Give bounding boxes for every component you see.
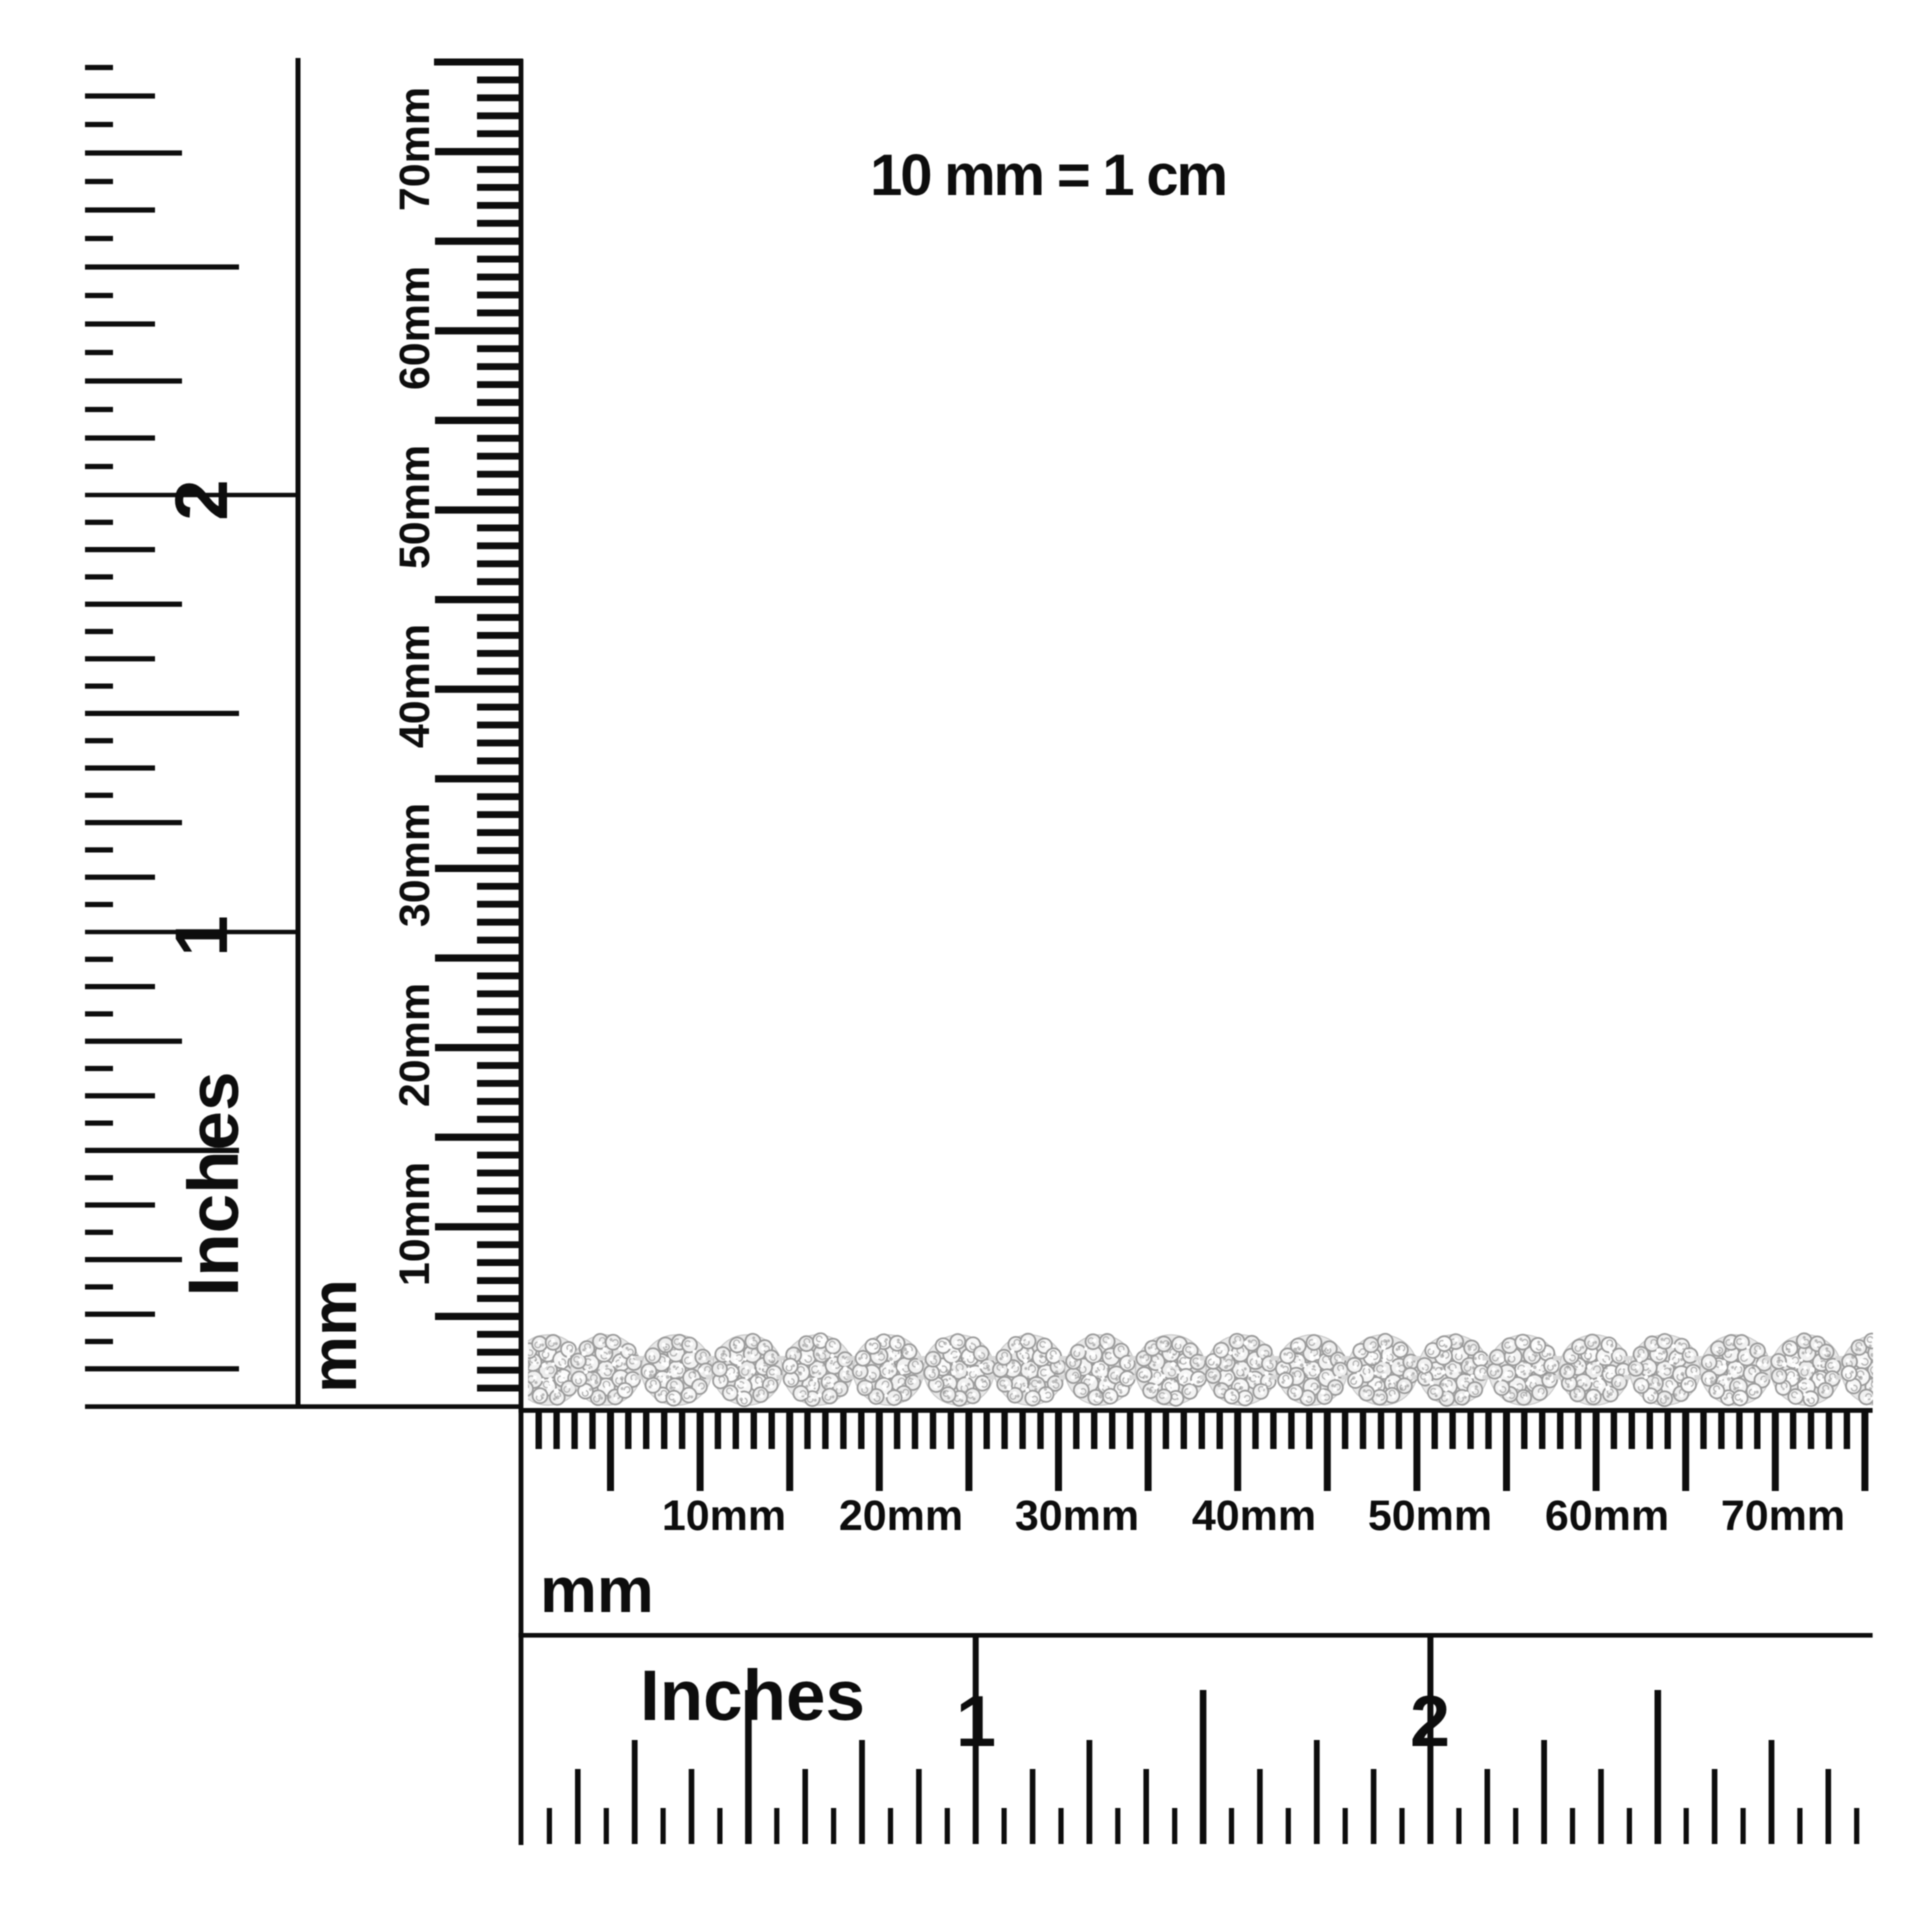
svg-text:mm: mm	[540, 1554, 654, 1626]
svg-text:70mm: 70mm	[391, 87, 439, 211]
svg-text:10mm: 10mm	[391, 1162, 439, 1286]
svg-text:10mm: 10mm	[662, 1492, 786, 1540]
svg-text:70mm: 70mm	[1721, 1492, 1845, 1540]
svg-text:60mm: 60mm	[1545, 1492, 1669, 1540]
svg-text:40mm: 40mm	[391, 624, 439, 748]
svg-text:2: 2	[160, 479, 243, 520]
svg-text:10 mm = 1 cm: 10 mm = 1 cm	[870, 143, 1226, 208]
svg-text:mm: mm	[298, 1279, 370, 1393]
svg-text:Inches: Inches	[640, 1657, 865, 1736]
svg-text:1: 1	[160, 915, 243, 956]
svg-text:20mm: 20mm	[391, 983, 439, 1107]
svg-text:30mm: 30mm	[1015, 1492, 1139, 1540]
svg-text:2: 2	[1410, 1682, 1450, 1762]
svg-text:Inches: Inches	[175, 1072, 254, 1297]
svg-text:1: 1	[956, 1682, 996, 1762]
svg-text:40mm: 40mm	[1192, 1492, 1316, 1540]
svg-text:50mm: 50mm	[391, 445, 439, 569]
svg-text:30mm: 30mm	[391, 803, 439, 927]
svg-text:60mm: 60mm	[391, 266, 439, 390]
svg-text:20mm: 20mm	[839, 1492, 963, 1540]
svg-text:50mm: 50mm	[1368, 1492, 1492, 1540]
